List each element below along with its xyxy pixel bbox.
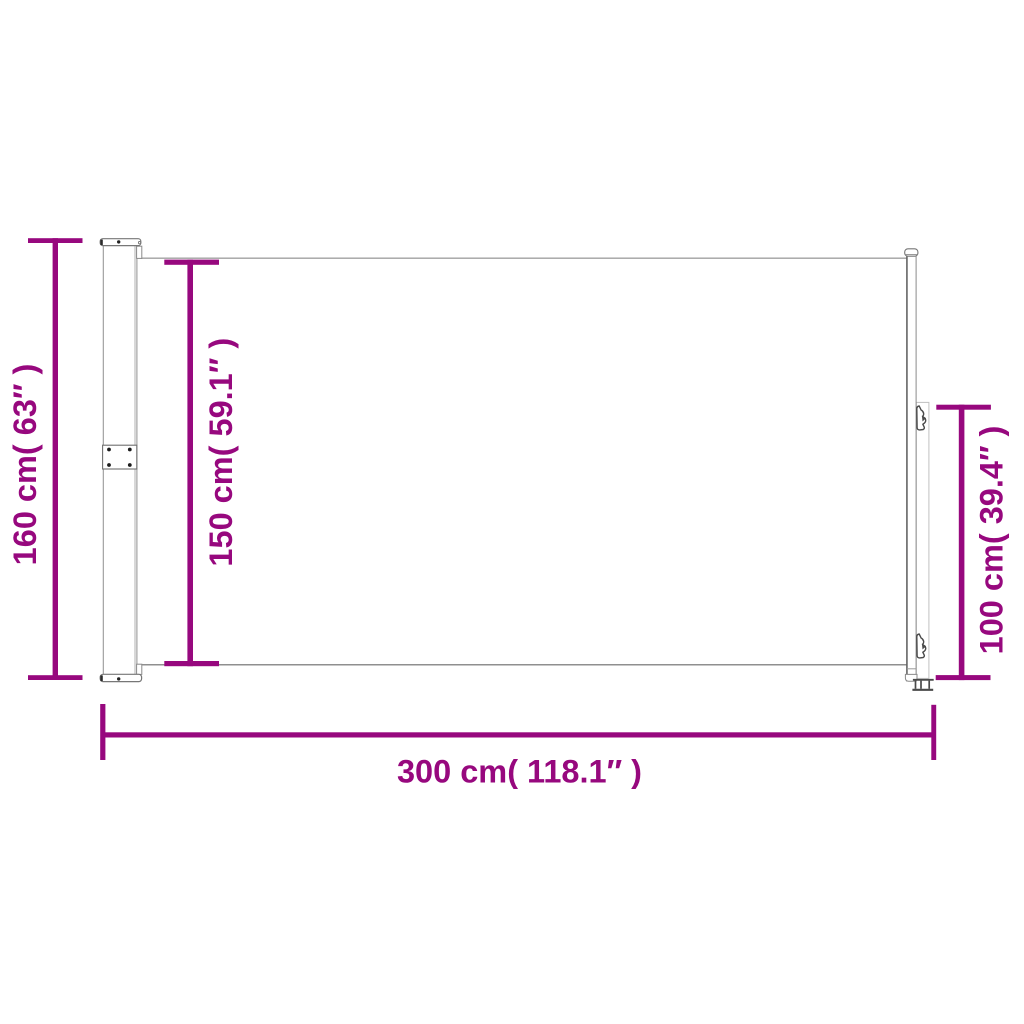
svg-text:300 cm( 118.1″ ): 300 cm( 118.1″ ) — [397, 754, 642, 790]
svg-text:100 cm( 39.4″ ): 100 cm( 39.4″ ) — [974, 426, 1010, 655]
svg-text:160 cm( 63″ ): 160 cm( 63″ ) — [7, 364, 43, 566]
svg-text:150 cm( 59.1″ ): 150 cm( 59.1″ ) — [203, 338, 239, 567]
